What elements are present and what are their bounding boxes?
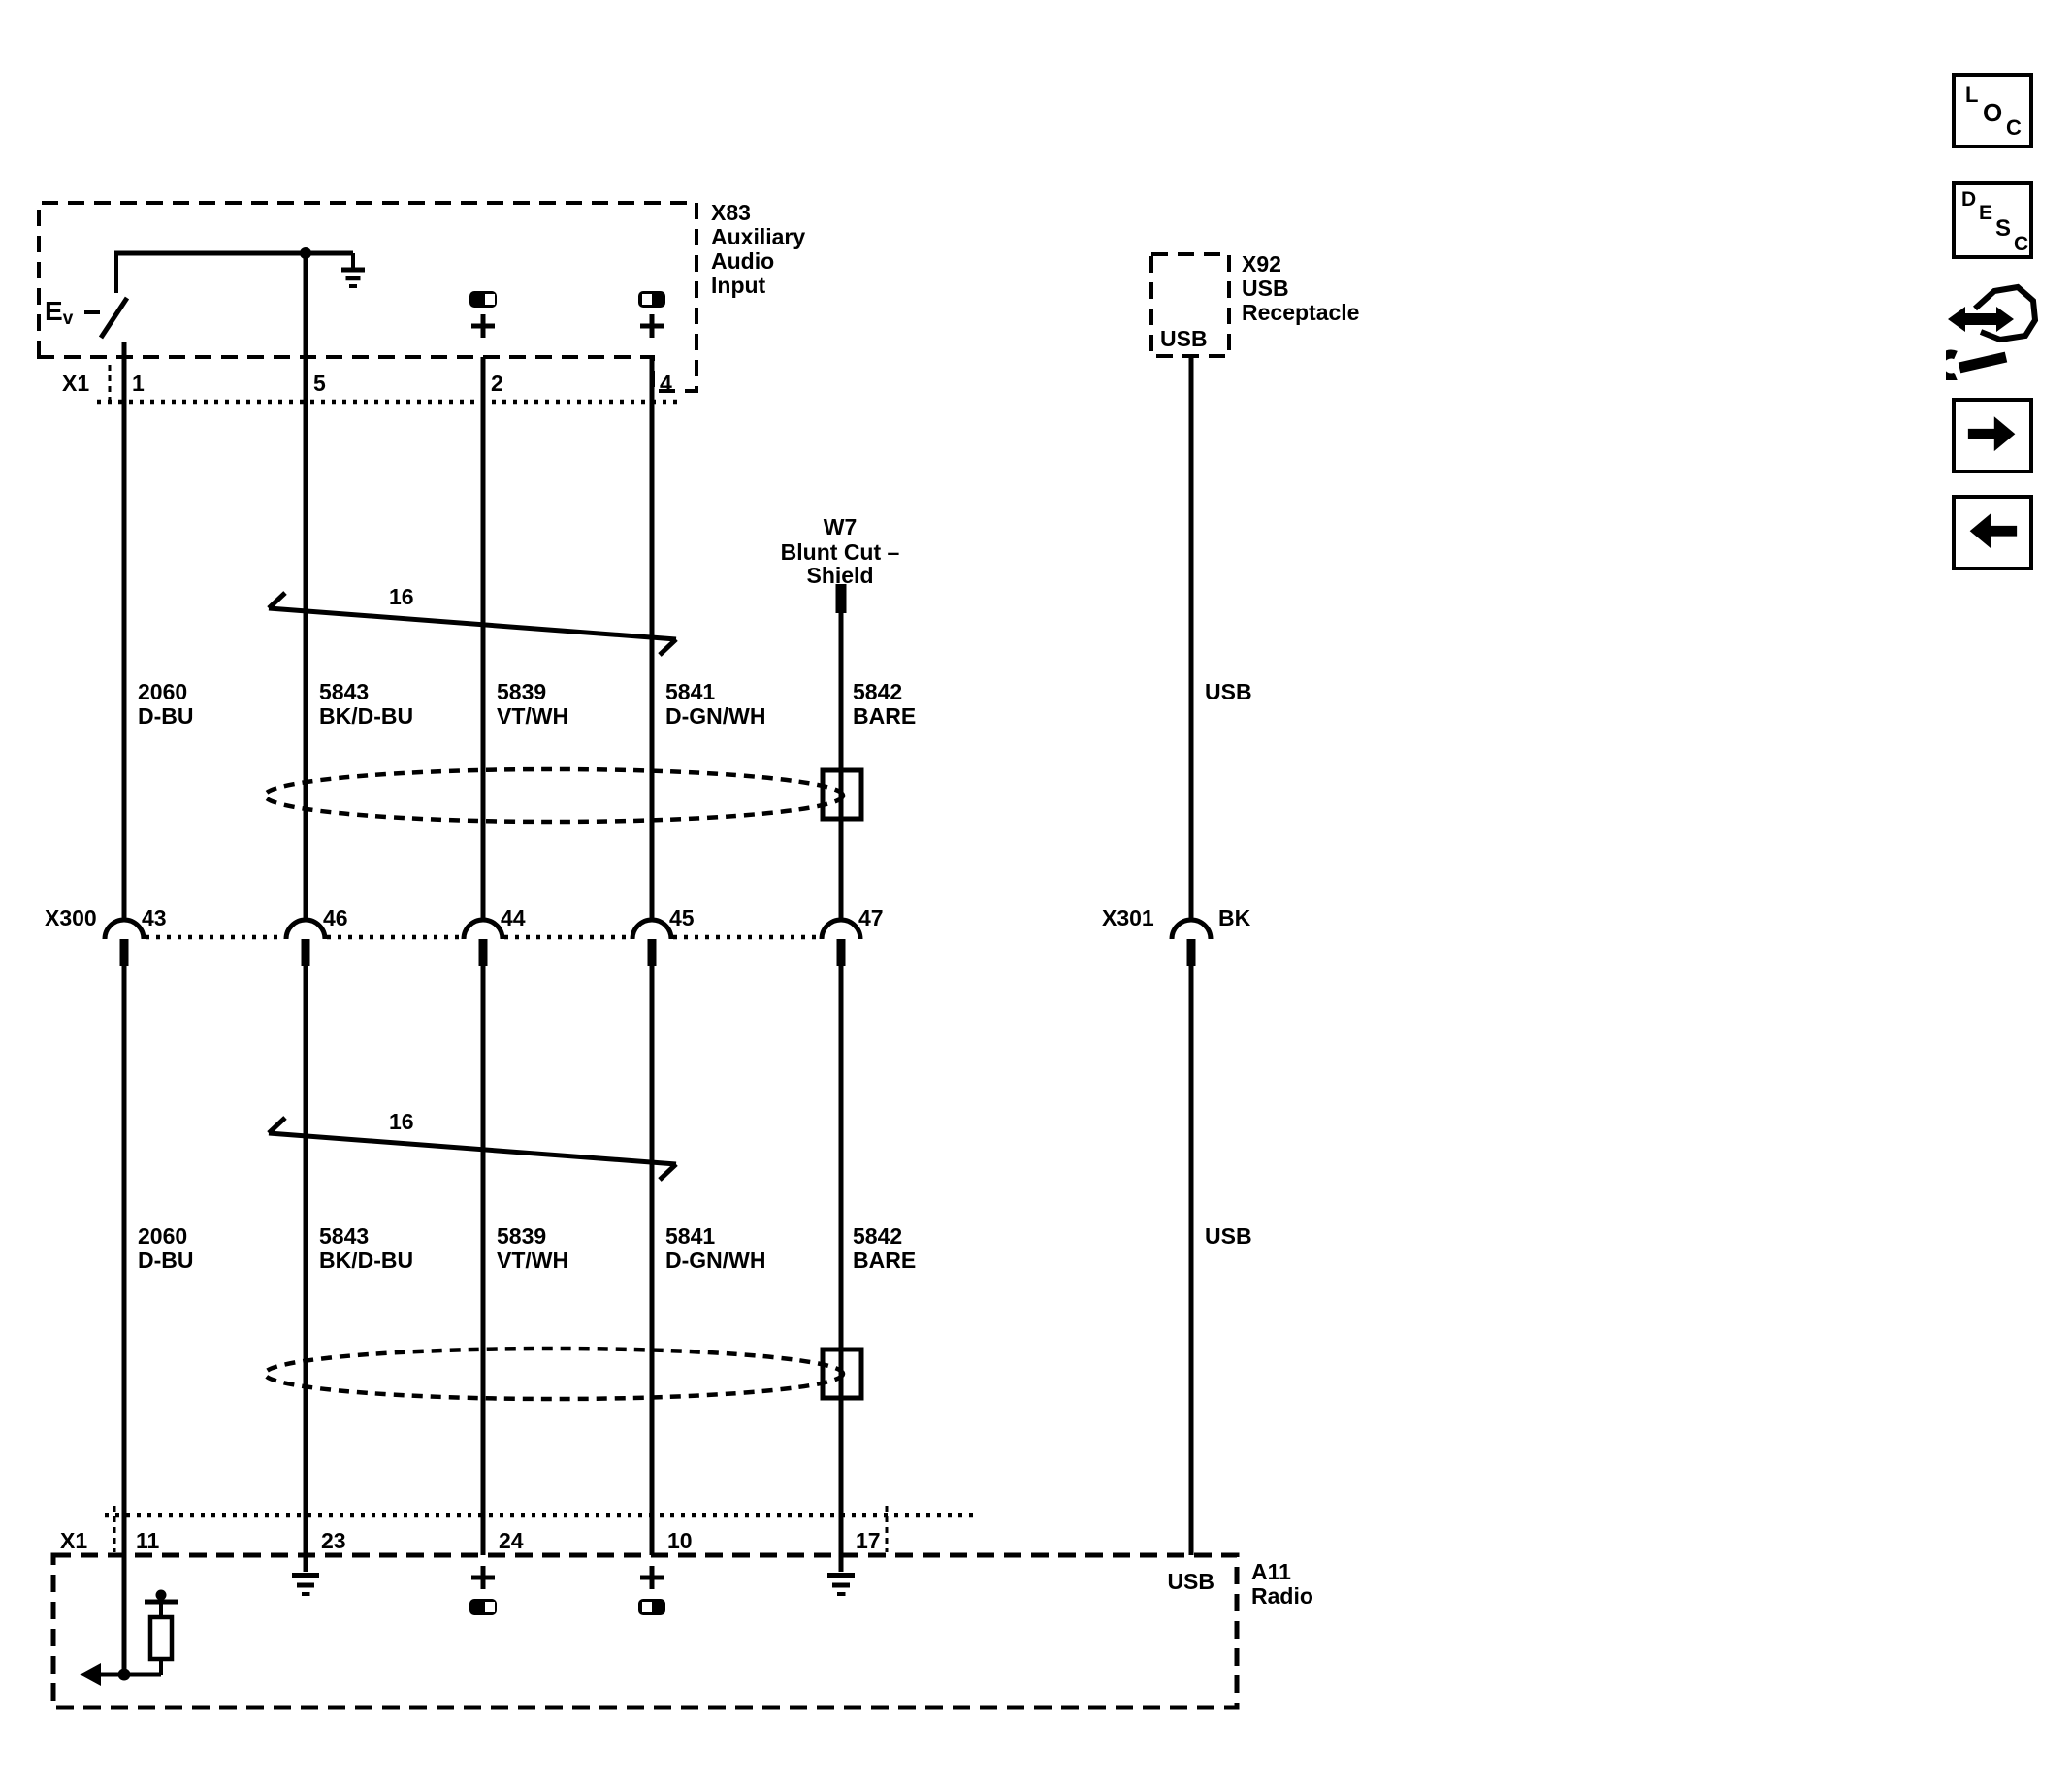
wire-5839 <box>479 357 488 1555</box>
ground-icon-pin17 <box>827 1576 855 1594</box>
x301-connector <box>1172 920 1211 939</box>
wire-circuit-5842-lower: 5842 <box>853 1223 902 1249</box>
x1-top-id-label[interactable]: X1 <box>62 371 89 396</box>
ground-icon-pin23 <box>292 1576 319 1594</box>
wire-color-5843-lower: BK/D-BU <box>319 1248 413 1273</box>
x301-id-label[interactable]: X301 <box>1102 905 1154 930</box>
wire-color-2060-lower: D-BU <box>138 1248 194 1273</box>
x300-pin-43: 43 <box>142 905 167 930</box>
x1-top-pin-5: 5 <box>313 371 326 396</box>
x83-name-line3: Input <box>711 273 766 298</box>
x83-name-line1: Auxiliary <box>711 224 805 249</box>
wiring-diagram-page: Ev X83 Auxiliary Audio Input X1 1 5 2 4 … <box>0 0 2072 1789</box>
plus-icon-pin4 <box>640 314 664 338</box>
x300-pin-47: 47 <box>858 905 884 930</box>
twisted-pair-symbol-lower <box>269 1118 676 1180</box>
wire-color-5841-lower: D-GN/WH <box>665 1248 765 1273</box>
plus-icon-pin2 <box>471 314 495 338</box>
x1-bottom-id-label[interactable]: X1 <box>60 1528 87 1553</box>
previous-button[interactable] <box>1952 495 2033 570</box>
wire-5842-shield <box>837 611 846 1572</box>
x1-top-pin-2: 2 <box>491 371 503 396</box>
x1-bottom-pin-24: 24 <box>499 1528 524 1553</box>
x92-pin-label: USB <box>1160 326 1208 351</box>
blunt-cut-stub <box>836 584 847 613</box>
audio-jack-icon-pin10 <box>638 1599 665 1615</box>
audio-jack-icon-pin2 <box>469 291 497 308</box>
twisted-pair-label-lower: 16 <box>389 1109 414 1134</box>
wire-circuit-5841-lower: 5841 <box>665 1223 715 1249</box>
usb-wire-label-upper: USB <box>1205 679 1252 704</box>
wire-color-5843: BK/D-BU <box>319 703 413 729</box>
desc-letter-e: E <box>1979 203 1992 223</box>
loc-button[interactable]: L O C <box>1952 73 2033 148</box>
w7-id-label[interactable]: W7 <box>824 514 858 539</box>
x1-top-pin-4: 4 <box>660 371 672 396</box>
desc-letter-d: D <box>1961 189 1976 210</box>
wire-5841 <box>648 357 657 1555</box>
radio-internal-circuit <box>80 1590 178 1687</box>
wire-circuit-2060-lower: 2060 <box>138 1223 187 1249</box>
a11-id-label[interactable]: A11 <box>1251 1559 1291 1584</box>
shield-ellipse-lower <box>265 1349 861 1399</box>
x300-connector-row <box>105 920 860 939</box>
desc-letter-c: C <box>2014 234 2028 254</box>
x1-bottom-pin-17: 17 <box>856 1528 881 1553</box>
ground-icon-x83 <box>341 253 365 286</box>
audio-jack-icon-pin4 <box>638 291 665 308</box>
plus-icon-pin24 <box>471 1566 495 1589</box>
x83-id-label[interactable]: X83 <box>711 200 751 225</box>
terminal-dot <box>156 1590 167 1601</box>
loc-letter-c: C <box>2006 117 2022 139</box>
twisted-pair-label-upper: 16 <box>389 584 414 609</box>
x92-id-label[interactable]: X92 <box>1242 251 1281 276</box>
x1-bottom-pin-10: 10 <box>667 1528 693 1553</box>
wire-circuit-5843-lower: 5843 <box>319 1223 369 1249</box>
wire-color-5842-lower: BARE <box>853 1248 916 1273</box>
x300-id-label[interactable]: X300 <box>45 905 97 930</box>
wire-usb <box>1187 356 1196 1555</box>
wiring-diagram-canvas[interactable]: Ev X83 Auxiliary Audio Input X1 1 5 2 4 … <box>0 0 2072 1789</box>
desc-button[interactable]: D E S C <box>1952 181 2033 259</box>
x300-pin-45: 45 <box>669 905 695 930</box>
left-arrow-icon <box>1956 499 2029 567</box>
audio-jack-icon-pin24 <box>469 1599 497 1615</box>
usb-wire-label-lower: USB <box>1205 1223 1252 1249</box>
a11-name-label: Radio <box>1251 1583 1313 1609</box>
twisted-pair-symbol-upper <box>269 593 676 655</box>
x92-name-line1: USB <box>1242 276 1289 301</box>
x1-top-pin-1: 1 <box>132 371 145 396</box>
w7-name-line1: Blunt Cut – <box>781 539 900 565</box>
x300-pin-46: 46 <box>323 905 348 930</box>
x1-bottom-connector-row <box>105 1506 978 1552</box>
wire-color-5842: BARE <box>853 703 916 729</box>
x92-name-line2: Receptacle <box>1242 300 1359 325</box>
loc-letter-o: O <box>1983 100 2002 125</box>
wire-color-5839: VT/WH <box>497 703 568 729</box>
x83-switch <box>84 247 353 338</box>
right-arrow-icon <box>1956 402 2029 470</box>
double-arrow <box>1948 307 2014 332</box>
wire-color-2060: D-BU <box>138 703 194 729</box>
x300-pin-44: 44 <box>501 905 526 930</box>
resistor-icon <box>150 1617 172 1659</box>
wire-circuit-5843: 5843 <box>319 679 369 704</box>
wire-circuit-5842: 5842 <box>853 679 902 704</box>
next-button[interactable] <box>1952 398 2033 473</box>
wire-circuit-5841: 5841 <box>665 679 715 704</box>
swap-wrench-icon[interactable] <box>1946 283 2039 380</box>
loc-letter-l: L <box>1965 84 1978 106</box>
wire-circuit-5839-lower: 5839 <box>497 1223 546 1249</box>
a11-usb-pin-label: USB <box>1167 1569 1214 1594</box>
x1-bottom-pin-23: 23 <box>321 1528 346 1553</box>
switch-label: Ev <box>45 296 74 329</box>
wire-5843 <box>302 253 310 1572</box>
plus-icon-pin10 <box>640 1566 664 1589</box>
shield-ellipse-upper <box>265 769 861 822</box>
desc-letter-s: S <box>1995 217 2011 241</box>
wire-2060 <box>120 342 129 1675</box>
wrench-head <box>1946 354 1956 377</box>
x83-name-line2: Audio <box>711 248 774 274</box>
wire-circuit-2060: 2060 <box>138 679 187 704</box>
wrench-handle <box>1959 357 2006 368</box>
wire-color-5839-lower: VT/WH <box>497 1248 568 1273</box>
continuation-arrow-left <box>80 1663 101 1686</box>
x1-bottom-pin-11: 11 <box>136 1528 160 1553</box>
wire-circuit-5839: 5839 <box>497 679 546 704</box>
x301-wire-color: BK <box>1218 905 1251 930</box>
wire-color-5841: D-GN/WH <box>665 703 765 729</box>
